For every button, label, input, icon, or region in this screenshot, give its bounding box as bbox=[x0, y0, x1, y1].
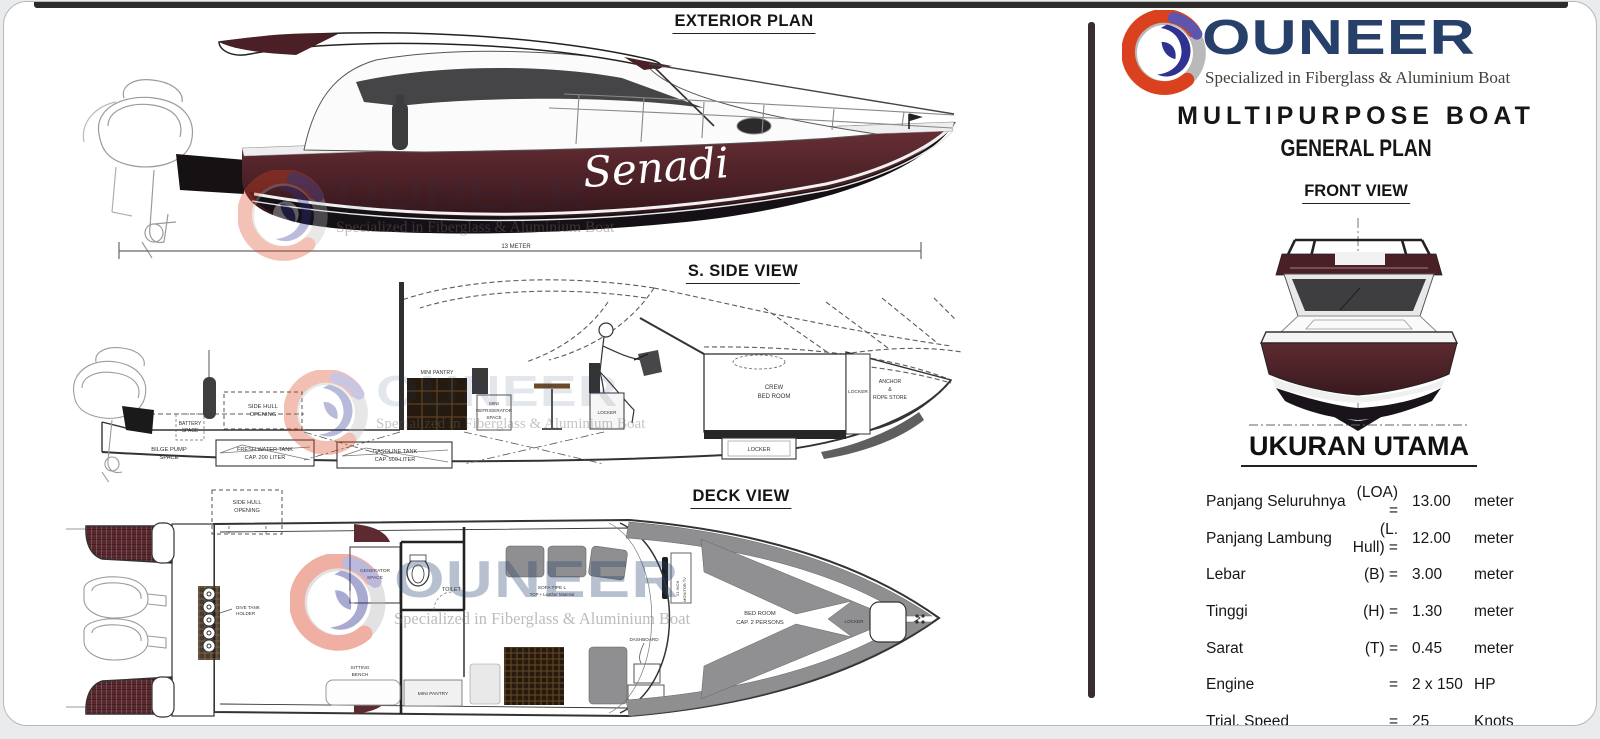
foredeck-hatch bbox=[737, 118, 771, 134]
label-bow-locker: LOCKER bbox=[845, 619, 865, 624]
spec-unit: meter bbox=[1466, 603, 1526, 621]
label-bench: SITTING bbox=[351, 665, 370, 671]
label-anchor: ANCHOR bbox=[879, 379, 902, 385]
deck-vent-cap bbox=[396, 95, 404, 104]
spec-symbol: (LOA) = bbox=[1346, 484, 1398, 520]
label-generator: GENERATOR bbox=[360, 568, 390, 574]
fresh-water-tank: FRESH WATER TANK CAP. 200 LITER bbox=[216, 440, 314, 466]
dimension-label: 13 METER bbox=[501, 244, 531, 250]
spec-symbol: (B) = bbox=[1346, 566, 1398, 584]
spec-label: Engine bbox=[1206, 676, 1346, 694]
specs-heading: UKURAN UTAMA bbox=[1241, 431, 1477, 467]
pad-cap-bottom bbox=[152, 677, 174, 717]
outboard-motors-icon bbox=[83, 80, 192, 258]
spec-label: Trial. Speed bbox=[1206, 713, 1346, 726]
exterior-plan-drawing: Senadi 13 METER bbox=[59, 14, 969, 262]
pantry-appliance bbox=[472, 368, 488, 394]
gunwale-flare bbox=[1261, 332, 1457, 343]
label-sofa: SOFA TIPE L bbox=[538, 585, 567, 591]
cabin-bulkhead bbox=[399, 282, 404, 430]
seat-back bbox=[589, 363, 600, 393]
svg-text:CAP. 2 PERSONS: CAP. 2 PERSONS bbox=[736, 620, 784, 626]
dive-tanks bbox=[203, 588, 215, 652]
page-subtitle: GENERAL PLAN bbox=[1156, 135, 1556, 163]
label-mini-pantry: MINI PANTRY bbox=[421, 370, 454, 376]
floor-mat bbox=[504, 647, 564, 705]
spec-unit: meter bbox=[1466, 530, 1526, 548]
specs-table: Panjang Seluruhnya (LOA) = 13.00 meter P… bbox=[1206, 484, 1536, 726]
helm-console bbox=[638, 350, 662, 376]
cabin-band bbox=[1281, 316, 1437, 332]
spec-unit: Knots bbox=[1466, 713, 1526, 726]
label-dashboard: DASHBOARD bbox=[629, 637, 659, 642]
label-side-hull: SIDE HULL bbox=[248, 404, 279, 410]
label-dive-tank: DIVE TANK bbox=[236, 605, 261, 610]
svg-text:FRESH WATER TANK: FRESH WATER TANK bbox=[237, 447, 293, 453]
label-pantry: MINI PANTRY bbox=[418, 691, 449, 697]
spec-value: 25 bbox=[1398, 713, 1466, 726]
page-title: MULTIPURPOSE BOAT bbox=[1106, 102, 1597, 131]
spec-value: 2 x 150 bbox=[1398, 676, 1466, 694]
vertical-divider bbox=[1088, 22, 1095, 698]
front-view-title: FRONT VIEW bbox=[1302, 182, 1410, 204]
label-side-hull: SIDE HULL bbox=[233, 500, 262, 506]
label-bilge: BILGE PUMP bbox=[151, 447, 187, 453]
table bbox=[534, 386, 570, 429]
svg-text:SPACE: SPACE bbox=[159, 455, 178, 461]
spec-value: 3.00 bbox=[1398, 566, 1466, 584]
svg-text:REFRIGERATOR: REFRIGERATOR bbox=[476, 408, 513, 413]
spec-label: Lebar bbox=[1206, 566, 1346, 584]
svg-text:OPENING: OPENING bbox=[250, 412, 277, 418]
label-monitor: 21 INCH bbox=[675, 581, 680, 596]
spec-row-height: Tinggi (H) = 1.30 meter bbox=[1206, 594, 1536, 631]
boat-name: Senadi bbox=[581, 138, 730, 197]
spec-label: Panjang Seluruhnya bbox=[1206, 493, 1346, 511]
side-hull-opening-box bbox=[224, 392, 302, 429]
svg-text:SPACE: SPACE bbox=[182, 428, 199, 434]
svg-text:&: & bbox=[888, 387, 892, 393]
spec-symbol: (H) = bbox=[1346, 603, 1398, 621]
svg-text:CAP. 200 LITER: CAP. 200 LITER bbox=[245, 455, 286, 461]
spec-value: 12.00 bbox=[1398, 530, 1466, 548]
motor-bracket bbox=[176, 154, 246, 194]
svg-text:BED ROOM: BED ROOM bbox=[758, 394, 791, 400]
label-locker-aft: LOCKER bbox=[848, 389, 868, 395]
svg-text:CAP. 500 LITER: CAP. 500 LITER bbox=[375, 457, 416, 463]
gasoline-tank: GASOLINE TANK CAP. 500 LITER bbox=[337, 442, 452, 468]
spec-label: Panjang Lambung bbox=[1206, 530, 1346, 548]
windshield-glass bbox=[1292, 279, 1426, 311]
spec-symbol: = bbox=[1346, 676, 1398, 694]
label-fridge: MINI bbox=[489, 401, 499, 406]
spec-symbol: (T) = bbox=[1346, 640, 1398, 658]
label-locker-bottom: LOCKER bbox=[747, 447, 770, 453]
spec-unit: meter bbox=[1466, 493, 1526, 511]
spec-unit: meter bbox=[1466, 640, 1526, 658]
motor-bracket bbox=[122, 406, 154, 434]
svg-text:ROPE STORE: ROPE STORE bbox=[873, 395, 907, 401]
spec-label: Tinggi bbox=[1206, 603, 1346, 621]
logo-tagline: Specialized in Fiberglass & Aluminium Bo… bbox=[1205, 68, 1510, 88]
bow-locker bbox=[870, 602, 906, 642]
crew-bedroom bbox=[704, 354, 846, 432]
spec-row-beam: Lebar (B) = 3.00 meter bbox=[1206, 557, 1536, 594]
monitor-mount bbox=[671, 553, 691, 603]
side-view-drawing: FRESH WATER TANK CAP. 200 LITER GASOLINE… bbox=[59, 264, 969, 482]
svg-text:OPENING: OPENING bbox=[234, 508, 260, 514]
svg-text:SPACE: SPACE bbox=[367, 575, 383, 581]
svg-text:SPACE: SPACE bbox=[486, 415, 501, 420]
spec-row-engine: Engine = 2 x 150 HP bbox=[1206, 667, 1536, 704]
outboard-motors-plan-icon bbox=[84, 577, 166, 660]
spec-row-draft: Sarat (T) = 0.45 meter bbox=[1206, 630, 1536, 667]
label-bedroom: BED ROOM bbox=[744, 611, 776, 617]
deck-view-drawing: DIVE TANK HOLDER SIDE HULL OPENING GENER… bbox=[54, 482, 949, 726]
generator-space bbox=[350, 547, 400, 603]
deck-vent bbox=[392, 102, 408, 150]
plan-sheet: EXTERIOR PLAN S. SIDE VIEW DECK VIEW OUN… bbox=[3, 1, 1597, 726]
spec-unit: HP bbox=[1466, 676, 1526, 694]
brow-center-notch bbox=[1335, 252, 1385, 265]
svg-text:BENCH: BENCH bbox=[352, 672, 369, 678]
svg-text:TOP + Leather Material: TOP + Leather Material bbox=[530, 592, 575, 597]
cabin-superstructure bbox=[219, 33, 954, 152]
label-crew: CREW bbox=[765, 385, 784, 391]
svg-text:GASOLINE TANK: GASOLINE TANK bbox=[373, 449, 418, 455]
vent-bottle bbox=[203, 377, 216, 419]
spec-row-loa: Panjang Seluruhnya (LOA) = 13.00 meter bbox=[1206, 484, 1536, 521]
label-battery: BATTERY bbox=[179, 421, 202, 427]
pad-cap-top bbox=[152, 523, 174, 563]
battery-space-box bbox=[176, 414, 204, 440]
sitting-bench bbox=[326, 680, 400, 705]
spec-label: Sarat bbox=[1206, 640, 1346, 658]
spec-symbol: = bbox=[1346, 713, 1398, 726]
cockpit-bench-2 bbox=[470, 664, 500, 704]
svg-text:MONITOR TV: MONITOR TV bbox=[682, 577, 687, 602]
logo-brand-text: OUNEER bbox=[1202, 14, 1476, 63]
label-locker-seat: LOCKER bbox=[598, 410, 618, 415]
spec-row-speed: Trial. Speed = 25 Knots bbox=[1206, 704, 1536, 726]
spec-value: 0.45 bbox=[1398, 640, 1466, 658]
spec-row-lhull: Panjang Lambung (L. Hull) = 12.00 meter bbox=[1206, 521, 1536, 558]
logo-swirl-icon bbox=[1122, 10, 1208, 96]
svg-text:HOLDER: HOLDER bbox=[236, 611, 256, 616]
top-border-strip bbox=[34, 2, 1568, 8]
spec-value: 1.30 bbox=[1398, 603, 1466, 621]
spec-unit: meter bbox=[1466, 566, 1526, 584]
front-view-drawing bbox=[1239, 214, 1474, 436]
spec-value: 13.00 bbox=[1398, 493, 1466, 511]
spec-symbol: (L. Hull) = bbox=[1346, 521, 1398, 557]
